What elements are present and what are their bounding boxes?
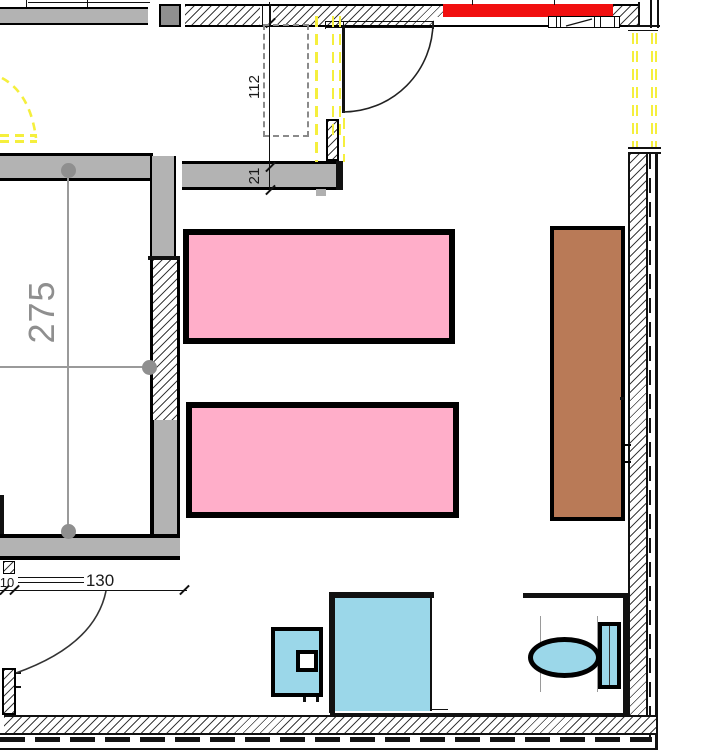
bed-2 — [186, 402, 459, 518]
demolition-dashed-line — [339, 16, 341, 140]
floor-plan-canvas: 275 112 21 — [0, 0, 724, 754]
bottom-wall-outer-line — [0, 748, 658, 750]
right-wall-hatch — [630, 154, 646, 733]
right-wall-edge-line — [646, 154, 648, 733]
window-symbol-mullion — [600, 17, 601, 27]
leaf-tick — [16, 672, 21, 674]
right-wall-dashed-line — [649, 154, 651, 737]
door-swing-arc-bottom — [16, 591, 106, 673]
left-room-bottom-wall — [0, 534, 180, 560]
corner-jamb-line — [650, 0, 652, 28]
right-wall-outer-line — [655, 154, 658, 750]
cabinet-tick — [303, 697, 306, 702]
window-head-line — [628, 30, 658, 31]
right-window-dashed-line — [655, 33, 657, 147]
survey-node — [142, 360, 157, 375]
right-window-dashed-line — [651, 33, 653, 147]
yellow-door-leaf-line — [0, 134, 37, 137]
shower-thin-line — [431, 709, 448, 710]
leaf-tick — [16, 686, 21, 688]
demolition-dashed-line — [315, 16, 318, 162]
survey-node — [61, 524, 76, 539]
left-room-right-wall-hatched — [150, 260, 180, 420]
yellow-door-swing-arc — [2, 78, 36, 138]
bottom-wall-edge-line — [0, 733, 658, 735]
window-symbol-mullion — [560, 17, 561, 27]
window-symbol — [548, 16, 620, 28]
left-room-right-wall-lower — [150, 420, 180, 538]
corner-outer-line — [657, 0, 659, 28]
dimension-wall-thickness: 21 — [224, 146, 284, 206]
bathroom-right-wall-line — [623, 593, 629, 721]
door-leaf-top — [342, 25, 345, 113]
left-room-top-wall — [0, 153, 153, 181]
bottom-wall-dashed-line — [0, 737, 652, 742]
bottom-wall-hatch — [4, 717, 656, 733]
shower-right-edge — [430, 598, 432, 711]
right-window-dashed-line — [632, 33, 634, 147]
sink-basin — [296, 650, 318, 672]
door-jamb-tick — [325, 21, 326, 29]
centerline-horizontal — [0, 366, 148, 368]
wardrobe-wall-bracket — [623, 444, 631, 463]
top-wall-hatched-left — [185, 4, 443, 27]
demolition-dashed-line — [343, 118, 345, 162]
dimension-room-width: 275 — [2, 272, 82, 352]
door-pier-small — [3, 561, 15, 574]
shower-tray — [335, 598, 431, 711]
window-symbol-mullion — [594, 17, 595, 27]
door-frame-line — [325, 21, 434, 22]
window-sill-line — [628, 147, 661, 149]
dimension-bottom-door: 130 — [70, 572, 130, 590]
window-symbol-mullion — [614, 17, 615, 27]
demolition-dashed-line — [332, 16, 334, 140]
wardrobe — [550, 226, 625, 521]
toilet-bowl — [528, 637, 601, 678]
middle-wall-end-cap — [336, 161, 343, 190]
survey-node — [61, 163, 76, 178]
window-symbol-mullion — [556, 17, 557, 27]
bathroom-top-partition — [523, 593, 629, 598]
top-edge-tick — [472, 0, 473, 5]
door-swing-arc-top — [343, 22, 433, 112]
left-room-right-wall-upper — [150, 156, 176, 258]
wall-debris-mark — [316, 189, 326, 196]
dashed-fixture-outline — [263, 24, 309, 137]
top-wall-pier — [159, 4, 181, 27]
dimension-door-offset: 10 — [0, 574, 20, 590]
top-wall-left-gray — [0, 7, 148, 25]
door-leaf-bottom — [2, 668, 16, 715]
top-edge-tick — [554, 0, 555, 5]
corner-head-line — [628, 25, 660, 27]
cabinet-tick — [316, 697, 319, 702]
wall-dot-mark — [620, 397, 624, 400]
toilet-tank-line — [609, 626, 610, 685]
yellow-door-leaf-line — [0, 140, 37, 143]
door-jamb-tick — [433, 21, 434, 29]
corner-jamb-line — [638, 2, 640, 27]
bed-1 — [183, 229, 455, 344]
right-window-dashed-line — [636, 33, 638, 147]
upper-room-cut-line — [28, 2, 150, 3]
